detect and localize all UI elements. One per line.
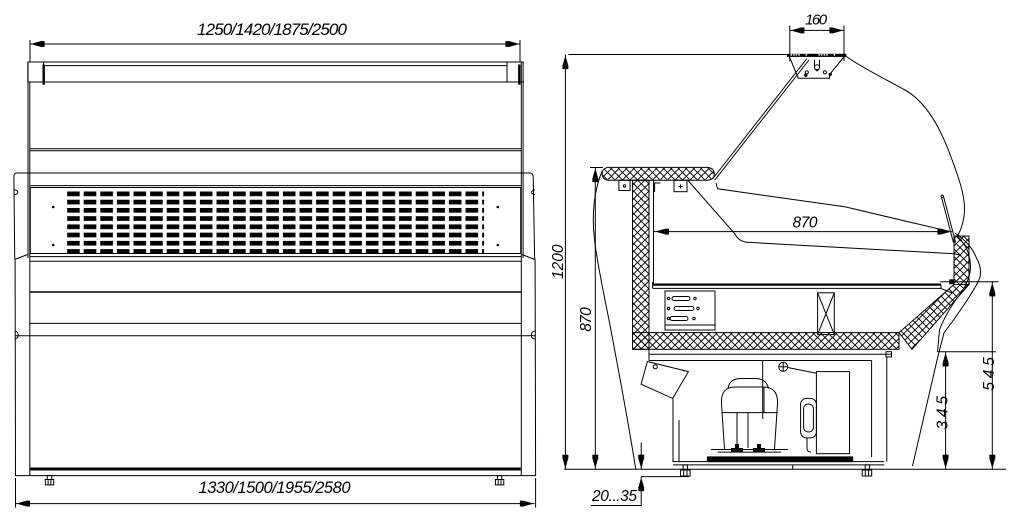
svg-text:870: 870 xyxy=(793,215,818,232)
svg-text:545: 545 xyxy=(981,357,998,391)
svg-text:1200: 1200 xyxy=(550,244,567,279)
svg-text:870: 870 xyxy=(578,307,595,332)
svg-text:20...35: 20...35 xyxy=(591,488,637,505)
svg-text:1250/1420/1875/2500: 1250/1420/1875/2500 xyxy=(197,20,348,39)
svg-text:1330/1500/1955/2580: 1330/1500/1955/2580 xyxy=(199,479,352,497)
svg-text:345: 345 xyxy=(935,396,952,430)
svg-text:160: 160 xyxy=(805,11,828,28)
